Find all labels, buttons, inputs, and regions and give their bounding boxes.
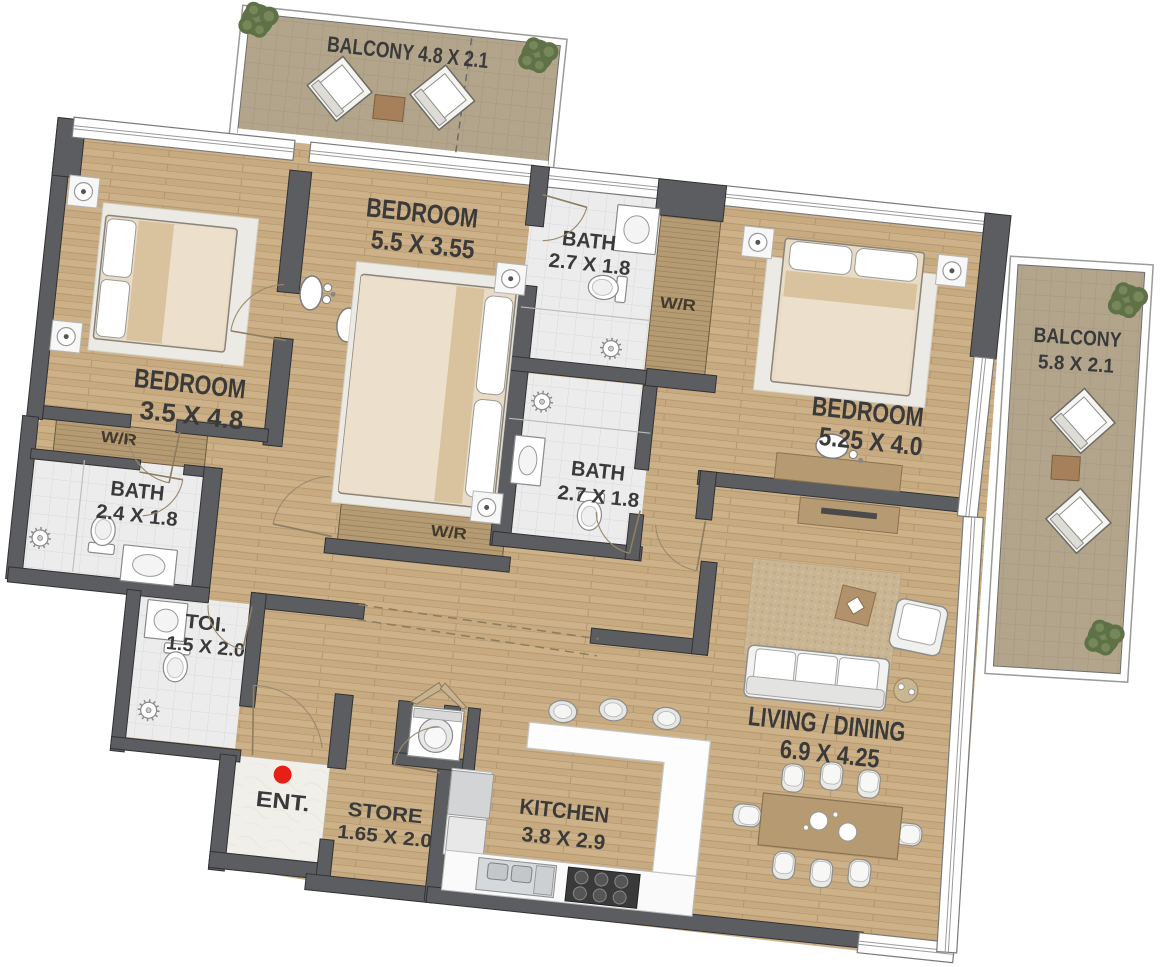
svg-text:TOI.: TOI.	[184, 611, 228, 637]
svg-text:5.8 X 2.1: 5.8 X 2.1	[1037, 351, 1114, 378]
